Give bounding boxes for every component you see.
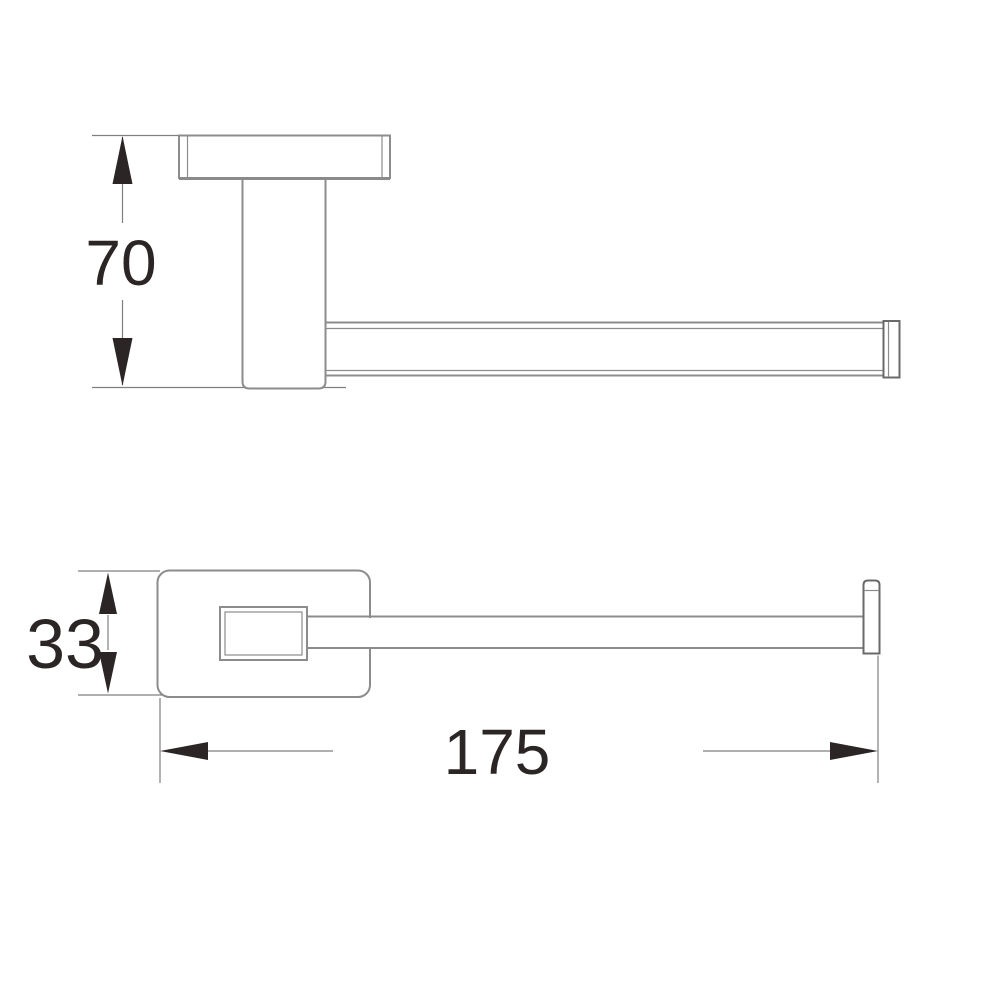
bar-plan-body bbox=[308, 618, 864, 647]
arrow-down-icon bbox=[113, 338, 133, 386]
side-view: 70 bbox=[85, 136, 899, 389]
arrow-right-icon bbox=[830, 742, 878, 760]
bar-end-cap-side bbox=[884, 321, 900, 378]
mounting-post-side bbox=[243, 178, 326, 389]
bar-mount-block bbox=[220, 607, 307, 660]
drawing-canvas: 70 33 175 bbox=[0, 0, 1000, 1000]
technical-drawing: 70 33 175 bbox=[0, 0, 1000, 1000]
height-dimension-label: 70 bbox=[85, 227, 156, 299]
arrow-left-icon bbox=[160, 742, 208, 760]
arrow-up-icon bbox=[113, 136, 133, 184]
depth-dimension-label: 33 bbox=[26, 605, 104, 683]
wall-plate-side bbox=[179, 136, 390, 179]
bar-end-cap-plan bbox=[864, 581, 880, 654]
length-dimension-label: 175 bbox=[444, 716, 551, 788]
plan-view: 33 175 bbox=[26, 571, 879, 789]
